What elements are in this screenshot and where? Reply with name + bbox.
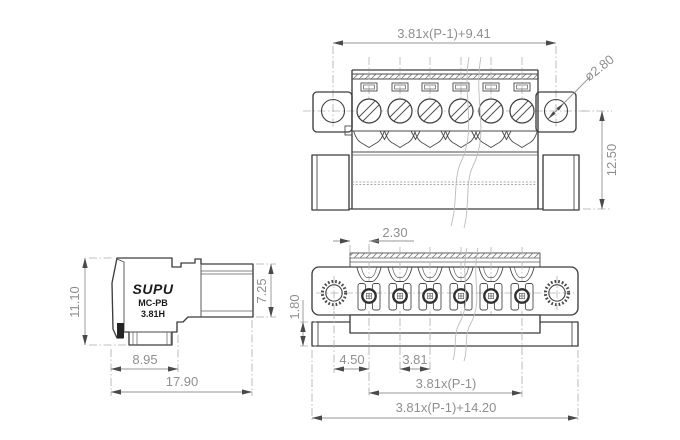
series-label: MC-PB: [138, 298, 168, 308]
top-body: [312, 267, 578, 315]
side-block-left: [312, 155, 349, 210]
dim-base-depth: 8.95: [132, 352, 157, 367]
technical-drawing: 3.81x(P-1)+9.41: [0, 0, 680, 440]
dim-pitch: 3.81: [402, 352, 427, 367]
dim-base-thickness: 1.80: [287, 294, 302, 319]
latch-foot: [117, 323, 124, 338]
break-line: [451, 57, 469, 226]
dim-pitch-total: 3.81x(P-1)+9.41: [397, 26, 491, 41]
dim-hole-diameter: ø2.80: [581, 52, 616, 84]
dim-end-margin: 4.50: [339, 352, 364, 367]
dim-total-width: 3.81x(P-1)+14.20: [396, 400, 497, 415]
model-label: 3.81H: [141, 309, 165, 319]
dim-pitch-span: 3.81x(P-1): [416, 376, 477, 391]
dim-front-height: 12.50: [604, 144, 619, 177]
top-view: 2.30 1.80 4.50 3.81 3.81x(P-1) 3.81x(P-1…: [287, 225, 578, 422]
dim-side-height: 11.10: [67, 286, 82, 318]
dim-total-depth: 17.90: [166, 374, 199, 389]
inner-band: [350, 315, 540, 333]
dim-edge-offset: 2.30: [382, 225, 407, 240]
drawing-canvas: 3.81x(P-1)+9.41: [0, 0, 680, 440]
brand-logo: SUPU: [133, 281, 174, 297]
dim-plug-height: 7.25: [254, 278, 269, 303]
front-view: 3.81x(P-1)+9.41: [303, 26, 619, 228]
side-view: SUPU MC-PB 3.81H 11.10 7.25 8.95 17.90: [67, 258, 276, 396]
